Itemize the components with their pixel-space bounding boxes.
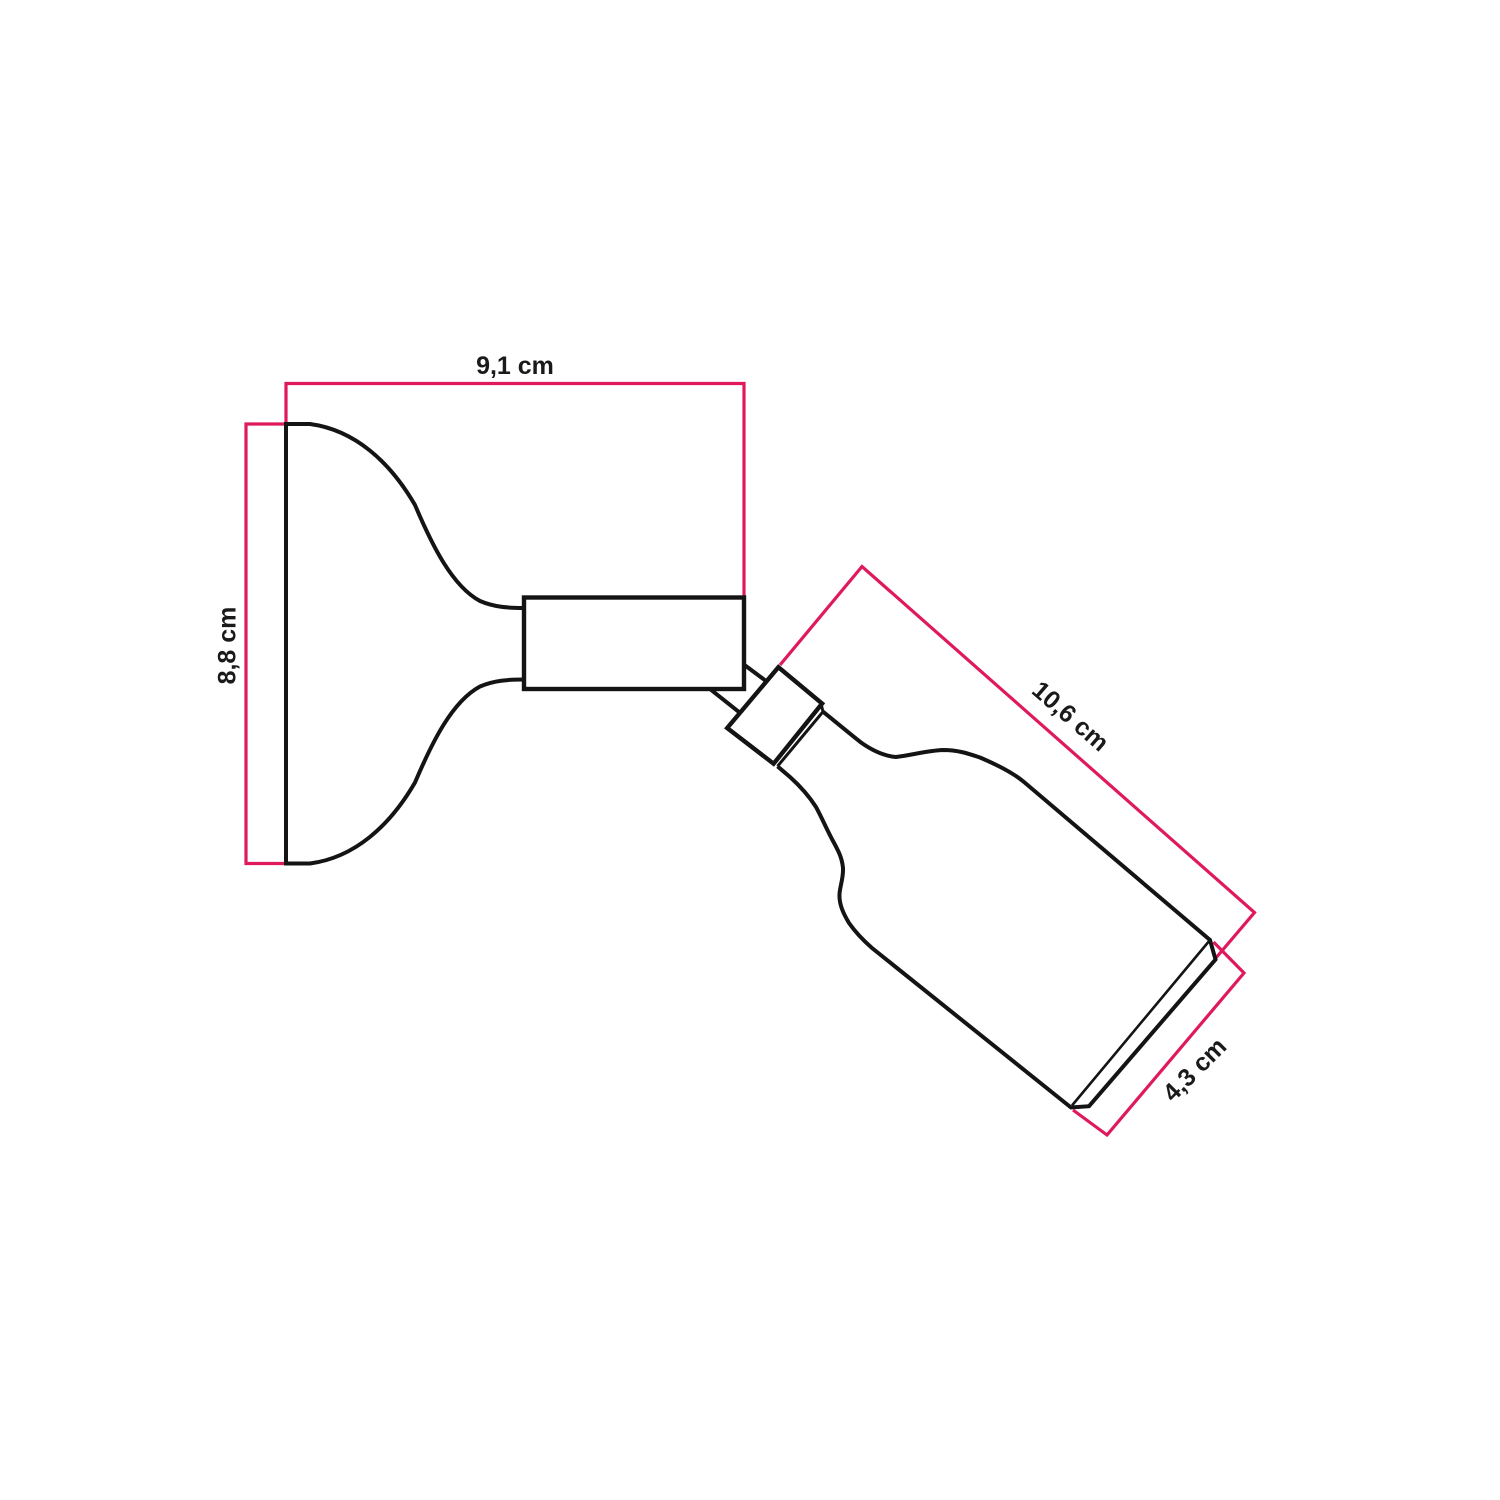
svg-text:8,8 cm: 8,8 cm (214, 607, 242, 685)
svg-text:9,1 cm: 9,1 cm (476, 352, 554, 380)
